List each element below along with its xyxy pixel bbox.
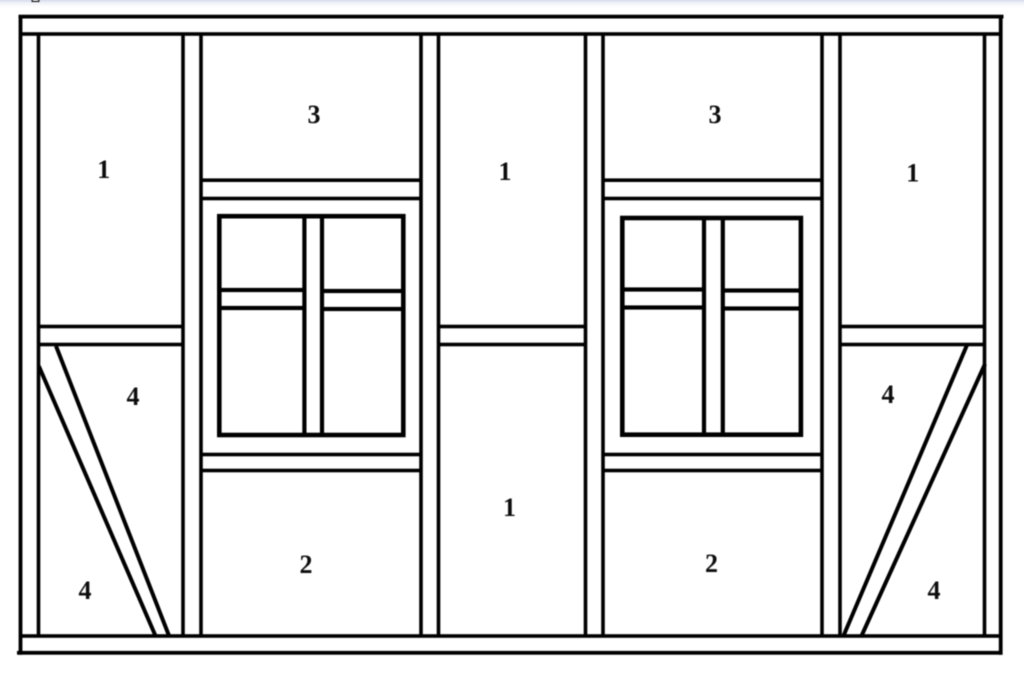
svg-text:3: 3 — [709, 100, 722, 129]
svg-text:4: 4 — [928, 576, 941, 605]
svg-text:1: 1 — [906, 159, 919, 188]
svg-text:1: 1 — [499, 157, 512, 186]
svg-text:4: 4 — [127, 382, 140, 411]
svg-text:1: 1 — [503, 493, 516, 522]
svg-text:3: 3 — [308, 100, 321, 129]
svg-text:4: 4 — [882, 380, 895, 409]
svg-text:2: 2 — [705, 549, 718, 578]
svg-text:1: 1 — [97, 155, 110, 184]
svg-text:4: 4 — [79, 576, 92, 605]
svg-text:2: 2 — [300, 550, 313, 579]
